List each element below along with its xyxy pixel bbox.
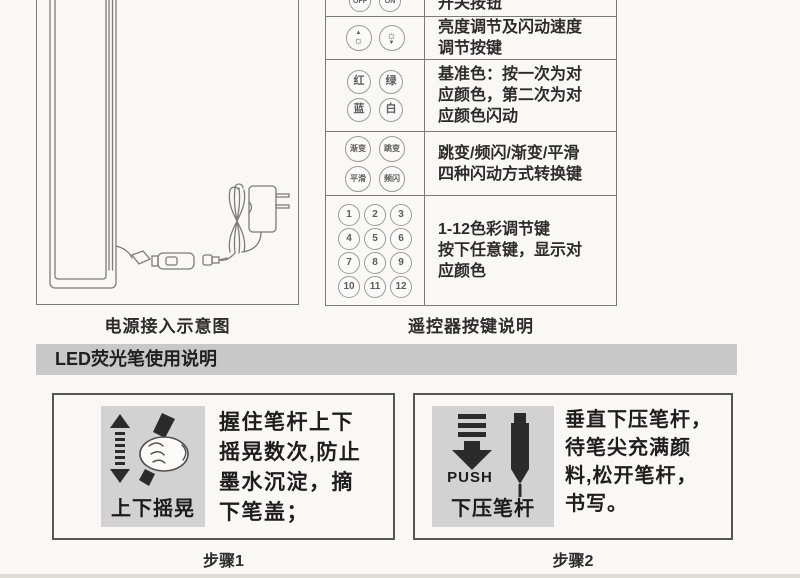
power-desc: 开关按钮 xyxy=(438,0,610,14)
base-color-desc: 基准色：按一次为对 应颜色，第二次为对 应颜色闪动 xyxy=(424,60,616,131)
blue-button-illustration: 蓝 xyxy=(347,98,371,122)
step2-caption: 步骤2 xyxy=(413,547,733,571)
step2-box: PUSH 下压笔杆 垂直下压笔杆， 待笔尖充满颜 料,松开笔杆， 书写。 xyxy=(413,393,733,540)
remote-row-modes: 渐变 跳变 平滑 频闪 跳变/频闪/渐变/平滑 四种闪动方式转换键 xyxy=(326,131,616,195)
coiled-cable xyxy=(219,184,245,260)
dc-plug xyxy=(203,255,212,265)
color-buttons: 红 绿 蓝 白 xyxy=(347,70,403,122)
num-10-button-illustration: 10 xyxy=(338,276,360,298)
brightness-down-button-illustration: ☼ ▼ xyxy=(379,25,405,51)
step2-icon-label: 下压笔杆 xyxy=(432,492,554,521)
brightness-buttons: ▲ ☼ ☼ ▼ xyxy=(326,17,424,59)
step1-text: 握住笔杆上下 摇晃数次,防止 墨水沉淀，摘 下笔盖； xyxy=(219,408,361,528)
manual-page: 电源接入示意图 OFF ON 开关按钮 ▲ ☼ ☼ ▼ 亮度调节及闪动速度 调节… xyxy=(0,0,800,578)
step2-icon-square: PUSH 下压笔杆 xyxy=(432,406,554,527)
remote-row-power: OFF ON 开关按钮 xyxy=(326,0,616,16)
bottom-divider xyxy=(0,574,800,578)
num-9-button-illustration: 9 xyxy=(390,252,412,274)
green-button-illustration: 绿 xyxy=(379,70,403,94)
num-2-button-illustration: 2 xyxy=(364,204,386,226)
remote-row-brightness: ▲ ☼ ☼ ▼ 亮度调节及闪动速度 调节按键 xyxy=(326,16,616,59)
sun-icon: ☼ xyxy=(353,36,363,46)
usb-controller xyxy=(158,253,194,269)
on-button-illustration: ON xyxy=(379,0,401,12)
section-header: LED荧光笔使用说明 xyxy=(36,344,737,375)
brightness-up-button-illustration: ▲ ☼ xyxy=(346,25,372,51)
num-7-button-illustration: 7 xyxy=(338,252,360,274)
step1-icon-square: 上下摇晃 xyxy=(101,406,205,527)
num-8-button-illustration: 8 xyxy=(364,252,386,274)
mode-buttons: 渐变 跳变 平滑 频闪 xyxy=(345,136,405,192)
off-button-illustration: OFF xyxy=(349,0,371,12)
num-11-button-illustration: 11 xyxy=(364,276,386,298)
num-3-button-illustration: 3 xyxy=(390,204,412,226)
step1-caption: 步骤1 xyxy=(52,547,395,571)
board-lead-wire xyxy=(116,246,132,258)
shake-pen-icon xyxy=(101,412,205,496)
power-diagram-box xyxy=(36,0,299,305)
step1-icon-label: 上下摇晃 xyxy=(101,492,205,521)
number-buttons: 1 2 3 4 5 6 7 8 9 10 11 12 xyxy=(338,204,412,298)
number-desc: 1-12色彩调节键 按下任意键，显示对 应颜色 xyxy=(424,196,616,305)
strobe-button-illustration: 频闪 xyxy=(379,166,405,192)
push-label: PUSH xyxy=(432,469,508,486)
jump-button-illustration: 跳变 xyxy=(379,136,405,162)
num-4-button-illustration: 4 xyxy=(338,228,360,250)
step1-box: 上下摇晃 握住笔杆上下 摇晃数次,防止 墨水沉淀，摘 下笔盖； xyxy=(52,393,395,540)
remote-table: OFF ON 开关按钮 ▲ ☼ ☼ ▼ 亮度调节及闪动速度 调节按键 xyxy=(325,0,617,306)
mode-desc: 跳变/频闪/渐变/平滑 四种闪动方式转换键 xyxy=(424,132,616,195)
num-12-button-illustration: 12 xyxy=(390,276,412,298)
num-5-button-illustration: 5 xyxy=(364,228,386,250)
brightness-desc: 亮度调节及闪动速度 调节按键 xyxy=(424,17,616,59)
push-pen-icon xyxy=(432,412,554,500)
down-arrow-icon: ▼ xyxy=(389,41,395,46)
remote-row-base-colors: 红 绿 蓝 白 基准色：按一次为对 应颜色，第二次为对 应颜色闪动 xyxy=(326,59,616,131)
num-1-button-illustration: 1 xyxy=(338,204,360,226)
remote-table-caption: 遥控器按键说明 xyxy=(325,312,617,334)
connector-head xyxy=(132,251,150,264)
fade-button-illustration: 渐变 xyxy=(345,136,371,162)
power-desc-cell: 开关按钮 xyxy=(424,0,616,16)
step2-text: 垂直下压笔杆， 待笔尖充满颜 料,松开笔杆， 书写。 xyxy=(565,406,712,518)
power-connection-illustration xyxy=(37,0,298,303)
power-diagram-caption: 电源接入示意图 xyxy=(36,312,299,334)
white-button-illustration: 白 xyxy=(379,98,403,122)
red-button-illustration: 红 xyxy=(347,70,371,94)
num-6-button-illustration: 6 xyxy=(390,228,412,250)
power-adapter xyxy=(242,186,289,252)
smooth-button-illustration: 平滑 xyxy=(345,166,371,192)
power-buttons: OFF ON xyxy=(326,0,424,16)
remote-row-numbers: 1 2 3 4 5 6 7 8 9 10 11 12 1-12色彩调节键 按下任… xyxy=(326,195,616,305)
sun-icon: ☼ xyxy=(386,31,396,41)
